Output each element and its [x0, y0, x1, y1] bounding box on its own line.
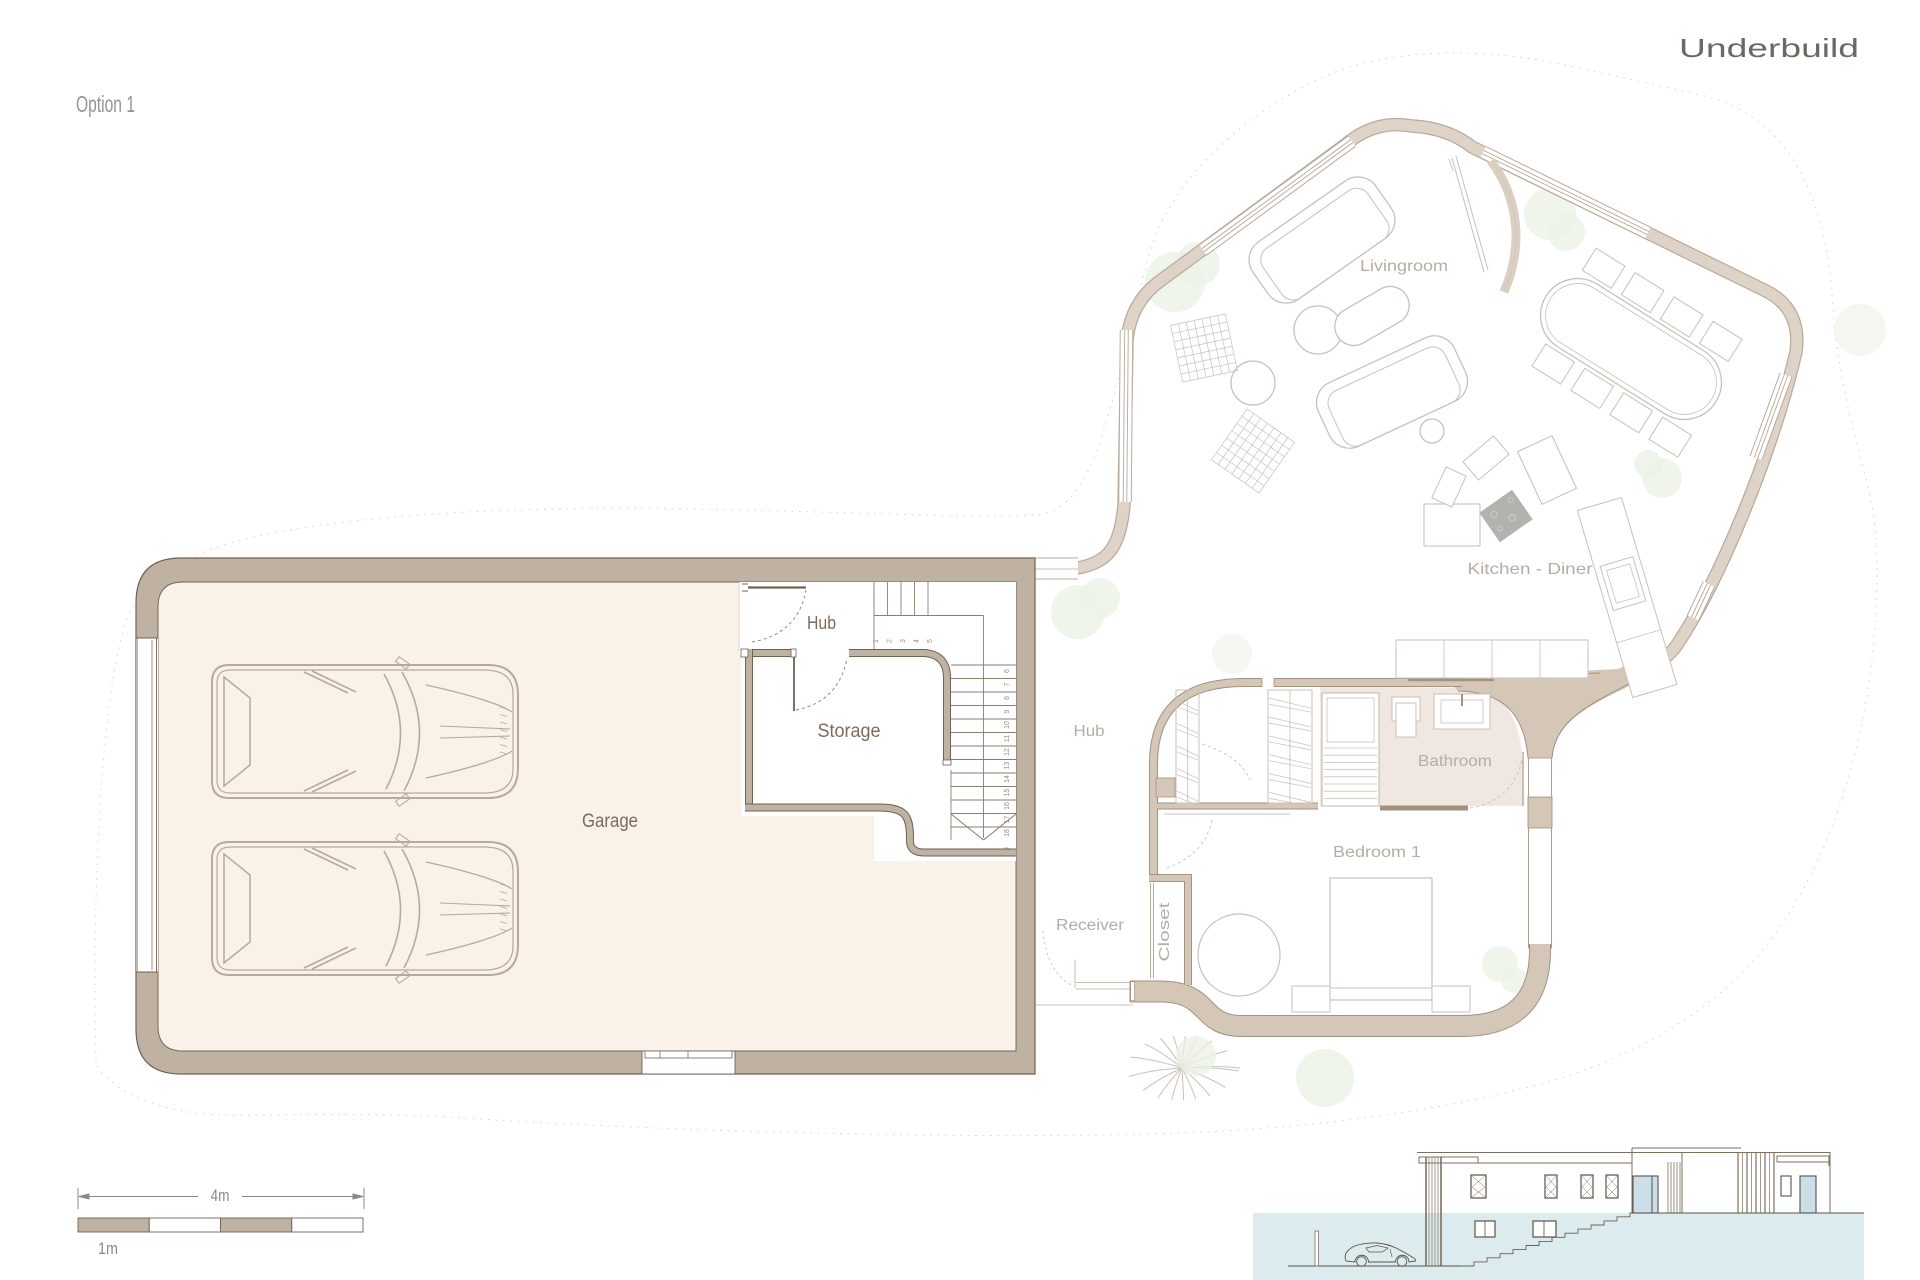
svg-text:16: 16 [1004, 802, 1011, 810]
svg-text:6: 6 [1004, 669, 1011, 673]
svg-text:3: 3 [900, 639, 907, 643]
svg-text:Livingroom: Livingroom [1360, 258, 1448, 275]
svg-text:Option 1: Option 1 [76, 91, 135, 117]
svg-text:Receiver: Receiver [1056, 917, 1124, 934]
svg-text:Kitchen - Diner: Kitchen - Diner [1468, 561, 1593, 578]
svg-text:1: 1 [873, 639, 880, 643]
svg-text:Storage: Storage [818, 721, 881, 742]
svg-text:Hub: Hub [807, 613, 836, 633]
svg-text:12: 12 [1004, 748, 1011, 756]
svg-text:2: 2 [887, 639, 894, 643]
svg-text:Underbuild: Underbuild [1679, 33, 1859, 63]
svg-text:13: 13 [1004, 762, 1011, 770]
svg-text:7: 7 [1004, 682, 1011, 686]
svg-text:9: 9 [1004, 709, 1011, 713]
svg-text:5: 5 [927, 639, 934, 643]
svg-text:14: 14 [1004, 775, 1011, 783]
svg-text:18: 18 [1004, 829, 1011, 837]
svg-text:10: 10 [1004, 721, 1011, 729]
svg-text:Bedroom 1: Bedroom 1 [1333, 844, 1421, 861]
svg-text:8: 8 [1004, 696, 1011, 700]
svg-text:15: 15 [1004, 789, 1011, 797]
svg-text:Garage: Garage [582, 811, 638, 832]
svg-text:1m: 1m [98, 1239, 118, 1258]
svg-text:17: 17 [1004, 816, 1011, 824]
svg-text:4: 4 [914, 639, 921, 643]
svg-text:4m: 4m [211, 1186, 230, 1205]
svg-text:11: 11 [1004, 735, 1011, 742]
svg-text:Closet: Closet [1157, 903, 1173, 962]
svg-text:Hub: Hub [1074, 723, 1105, 740]
svg-text:Bathroom: Bathroom [1418, 753, 1492, 770]
